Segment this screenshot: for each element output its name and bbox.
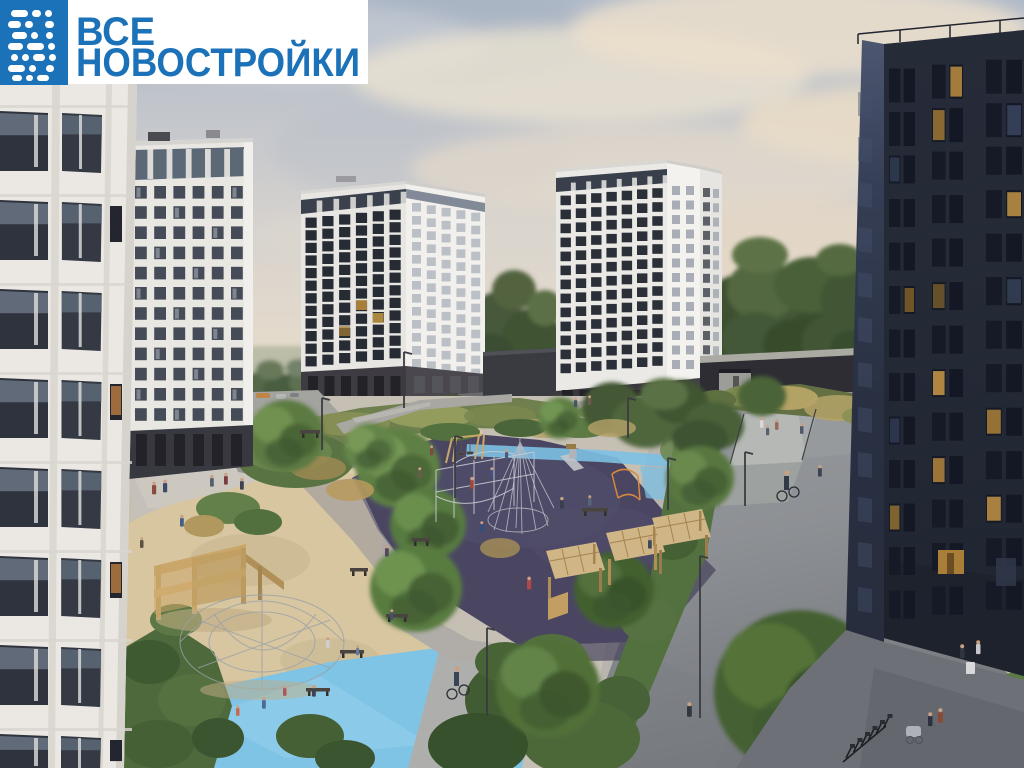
svg-text:НОВОСТРОЙКИ: НОВОСТРОЙКИ [76, 39, 360, 85]
